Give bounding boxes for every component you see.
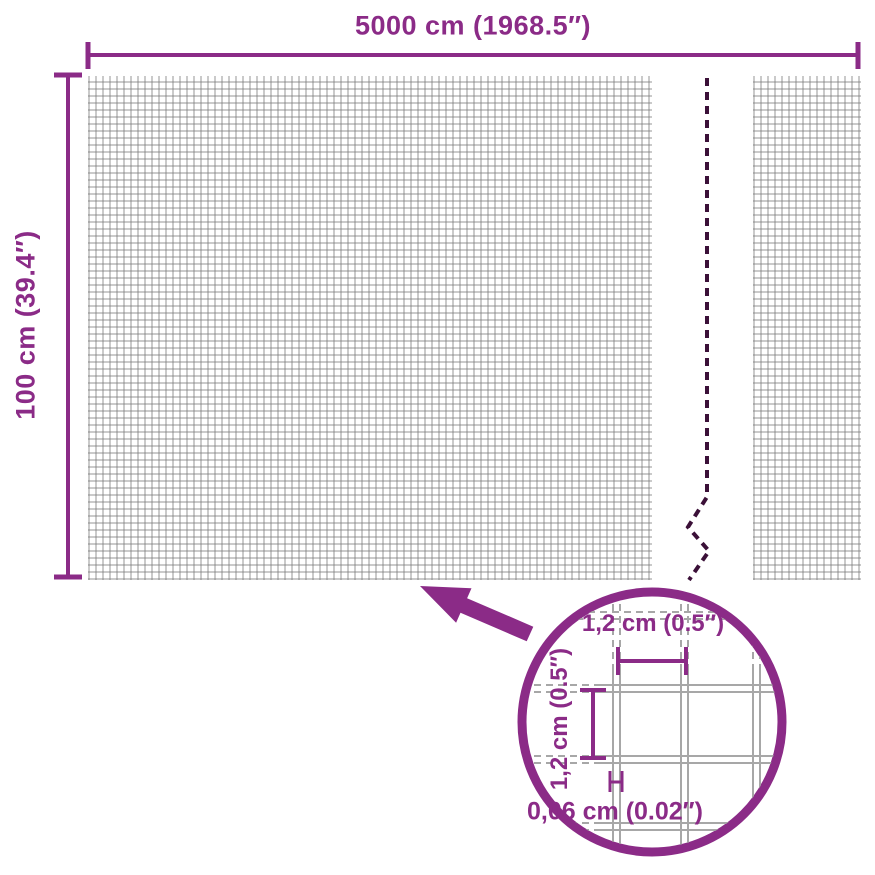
width-dimension-label: 5000 cm (1968.5″)	[355, 11, 591, 42]
arrow-icon	[420, 586, 533, 641]
mesh-height-label: 1,2 cm (0.5″)	[546, 648, 574, 790]
width-dimension-line	[88, 42, 858, 69]
break-line	[688, 78, 709, 580]
product-dimension-diagram: 5000 cm (1968.5″) 100 cm (39.4″) 1,2 cm …	[0, 0, 875, 875]
height-dimension-line	[54, 75, 82, 577]
height-dimension-label: 100 cm (39.4″)	[11, 230, 42, 420]
wire-thickness-label: 0,06 cm (0.02″)	[527, 798, 703, 827]
diagram-graphics	[0, 0, 875, 875]
mesh-width-label: 1,2 cm (0.5″)	[582, 610, 724, 638]
